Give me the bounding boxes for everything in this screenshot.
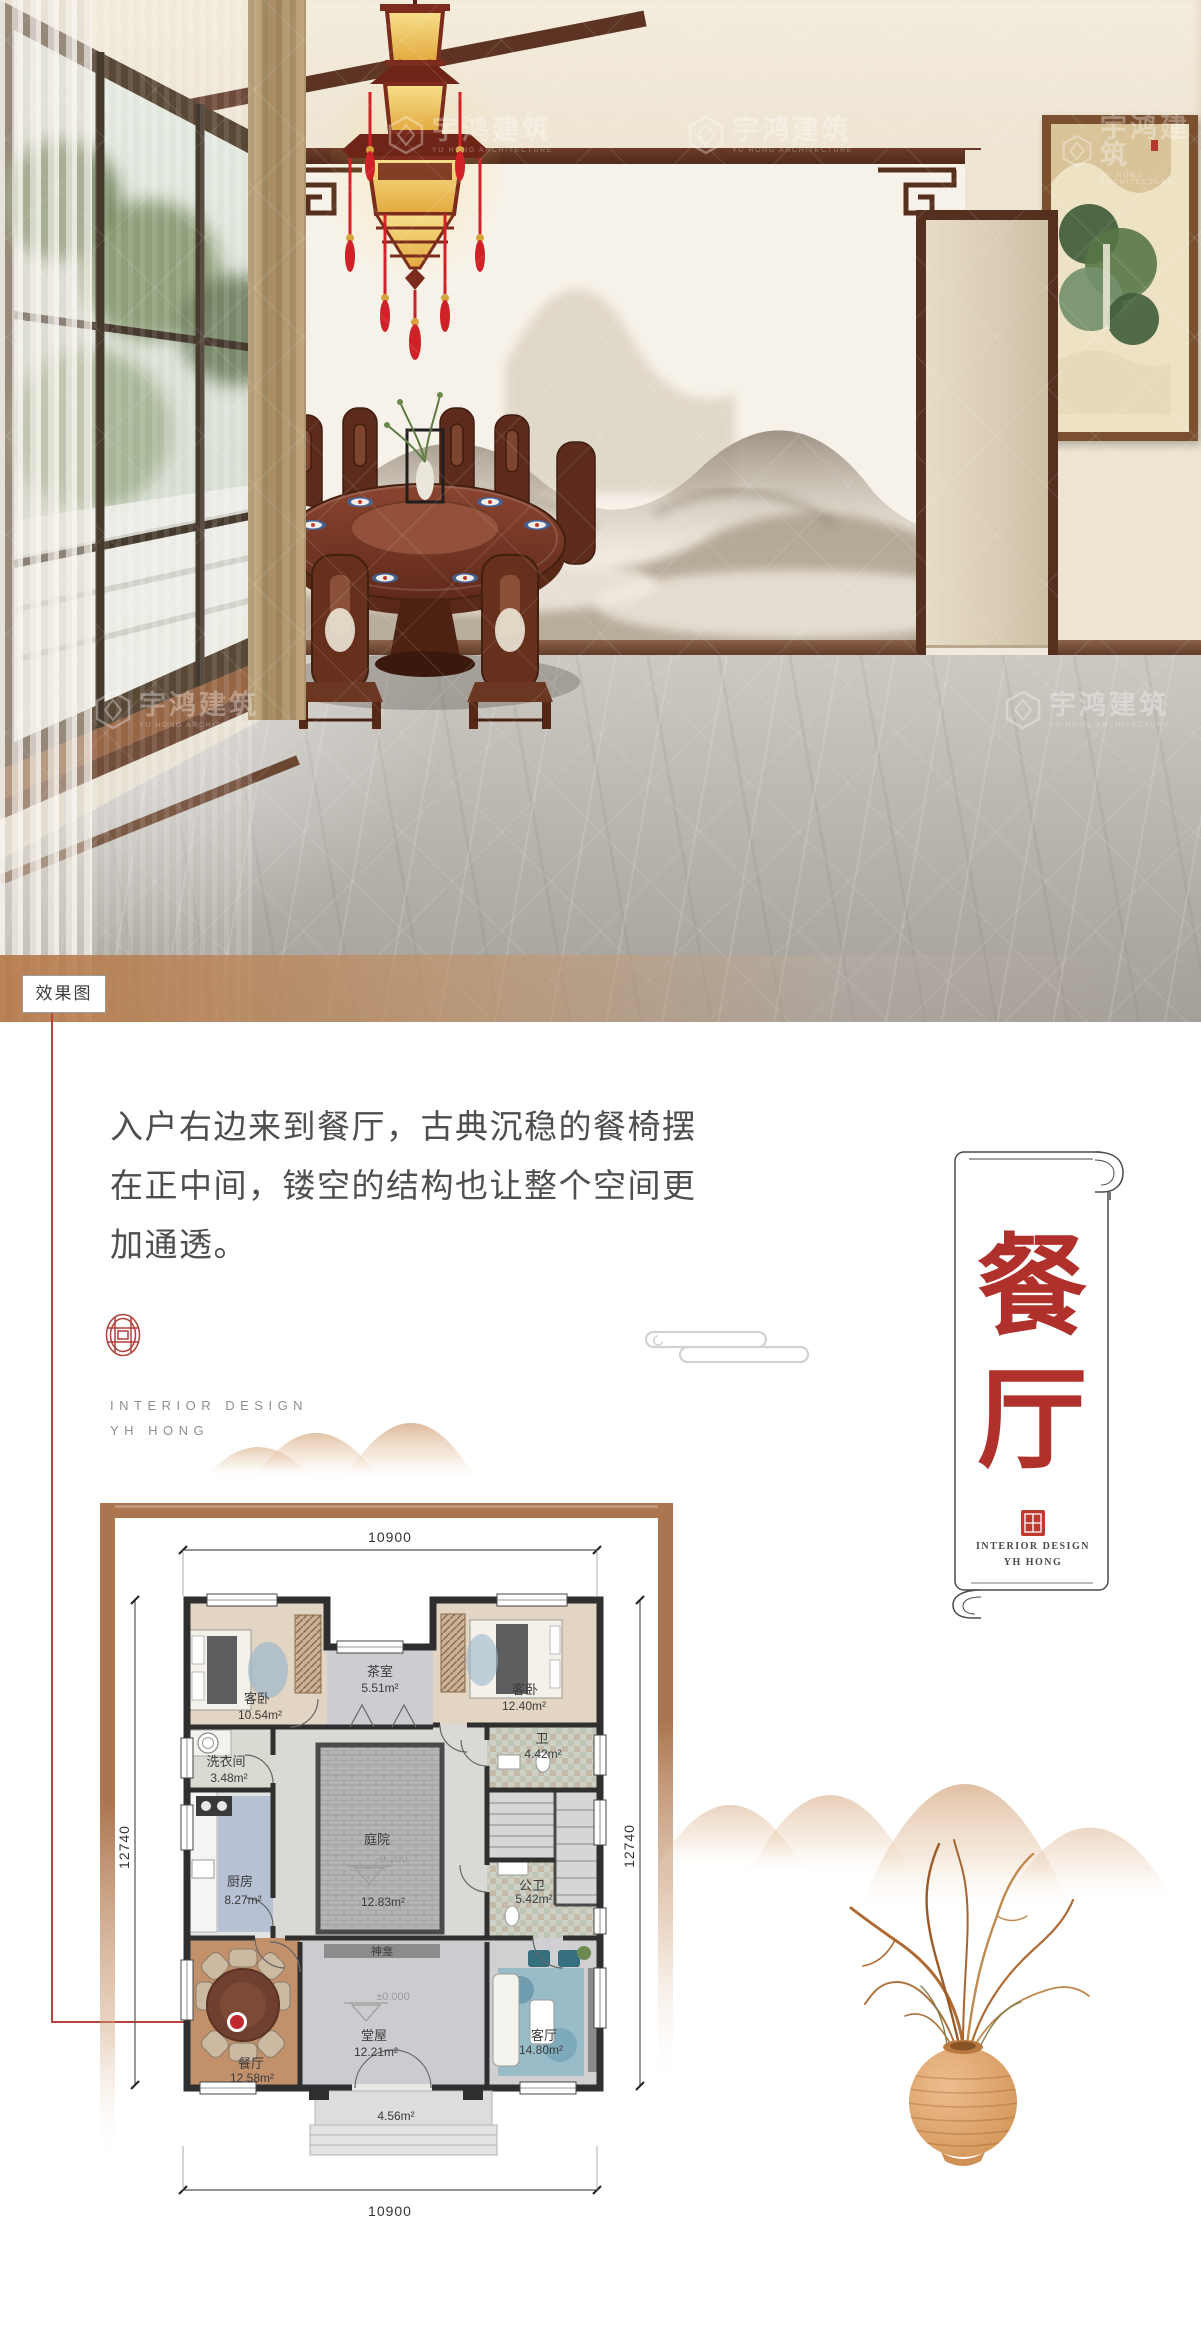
room-area-living: 14.80m² <box>519 2043 563 2057</box>
room-area-bath: 4.42m² <box>524 1747 561 1761</box>
cloud-motif-icon <box>640 1326 815 1376</box>
watermark: 宇鸿建筑YU HONG ARCHITECTURE <box>1005 690 1170 730</box>
watermark: 宇鸿建筑YU HONG ARCHITECTURE <box>388 115 553 155</box>
intro-line: 入户右边来到餐厅，古典沉稳的餐椅摆 <box>110 1100 790 1144</box>
watermark: 宇鸿建筑YU HONG ARCHITECTURE <box>95 690 260 730</box>
intro-line: 加通透。 <box>110 1218 790 1262</box>
room-label-bath: 卫 <box>535 1731 548 1746</box>
brand-logo-icon <box>1005 690 1041 730</box>
room-area-tearoom: 5.51m² <box>361 1681 398 1695</box>
room-area-porch: 4.56m² <box>377 2109 414 2123</box>
room-label-laundry: 洗衣间 <box>206 1754 245 1769</box>
dim-bottom-label: 10900 <box>368 2203 412 2219</box>
scroll-title-char-2: 厅 <box>977 1360 1087 1482</box>
mountains-left-decoration <box>195 1360 480 1485</box>
room-label-living: 客厅 <box>531 2028 557 2043</box>
render-photo: 宇鸿建筑YU HONG ARCHITECTURE 宇鸿建筑YU HONG ARC… <box>0 0 1201 1022</box>
sheer-curtain <box>0 0 92 1022</box>
room-label-tearoom: 茶室 <box>367 1664 393 1679</box>
room-area-bedroom1: 10.54m² <box>238 1708 282 1722</box>
scroll-title-char-1: 餐 <box>977 1227 1087 1349</box>
door-opening <box>916 210 1058 682</box>
watermark-en: YU HONG ARCHITECTURE <box>139 722 260 729</box>
sheer-curtain <box>92 0 252 1022</box>
room-label-bedroom1: 客卧 <box>244 1691 270 1706</box>
room-area-bedroom2: 12.40m² <box>502 1699 546 1713</box>
watermark-cn: 宇鸿建筑 <box>732 117 853 144</box>
watermark-en: YU HONG ARCHITECTURE <box>432 147 553 154</box>
room-label-bedroom2: 客卧 <box>512 1682 538 1697</box>
room-area-public-bath: 5.42m² <box>515 1892 552 1906</box>
photo-tag-label: 效果图 <box>22 975 106 1013</box>
callout-line-vertical <box>51 1013 53 2022</box>
room-label-courtyard: 庭院 <box>364 1832 390 1847</box>
curtain-drape <box>248 0 306 720</box>
scroll-caption-line1: INTERIOR DESIGN <box>976 1541 1090 1552</box>
room-label-shrine: 神龛 <box>371 1944 393 1958</box>
watermark-cn: 宇鸿建筑 <box>139 692 260 719</box>
brand-logo-icon <box>95 690 131 730</box>
lattice-ornament-icon <box>102 1312 144 1358</box>
poster-page: 宇鸿建筑YU HONG ARCHITECTURE 宇鸿建筑YU HONG ARC… <box>0 0 1201 2332</box>
watermark-cn: 宇鸿建筑 <box>432 117 553 144</box>
room-label-public-bath: 公卫 <box>519 1878 545 1893</box>
room-area-laundry: 3.48m² <box>210 1771 247 1785</box>
room-area-kitchen: 8.27m² <box>224 1893 261 1907</box>
dim-left-label: 12740 <box>116 1825 132 1869</box>
room-label-hall: 堂屋 <box>361 2028 387 2043</box>
seal-icon <box>1021 1510 1045 1536</box>
watermark: 宇鸿建筑YU HONG ARCHITECTURE <box>688 115 853 155</box>
brand-logo-icon <box>688 115 724 155</box>
dim-top-label: 10900 <box>368 1529 412 1545</box>
watermark: 宇鸿建筑YU HONG ARCHITECTURE <box>1062 115 1201 186</box>
room-area-dining: 12.58m² <box>230 2071 274 2085</box>
room-level-hall: ±0.000 <box>376 1991 410 2003</box>
room-area-courtyard: 12.83m² <box>361 1895 405 1909</box>
room-label-kitchen: 厨房 <box>227 1874 253 1889</box>
watermark-en: YU HONG ARCHITECTURE <box>1049 722 1170 729</box>
watermark-en: YU HONG ARCHITECTURE <box>732 147 853 154</box>
watermark-en: YU HONG ARCHITECTURE <box>1100 172 1201 186</box>
room-level-courtyard: -0.200 <box>376 1853 407 1865</box>
brand-logo-icon <box>388 115 424 155</box>
photo-bottom-gradient <box>0 955 1201 1022</box>
chandelier <box>330 0 500 365</box>
vase <box>907 2040 1019 2166</box>
scroll-banner: 餐 厅 INTERIOR DESIGN YH HONG <box>945 1140 1145 1625</box>
vase-branches-decoration <box>835 1830 1135 2175</box>
floorplan: 10900 10900 12740 12740 <box>100 1500 680 2240</box>
watermark-cn: 宇鸿建筑 <box>1100 115 1201 169</box>
room-area-hall: 12.21m² <box>354 2045 398 2059</box>
dried-branches <box>851 1840 1089 2045</box>
intro-line: 在正中间，镂空的结构也让整个空间更 <box>110 1159 790 1203</box>
watermark-cn: 宇鸿建筑 <box>1049 692 1170 719</box>
brand-logo-icon <box>1062 131 1092 171</box>
dining-table-plan <box>196 1949 290 2061</box>
scroll-caption-line2: YH HONG <box>1004 1557 1063 1568</box>
room-label-dining: 餐厅 <box>238 2056 264 2071</box>
